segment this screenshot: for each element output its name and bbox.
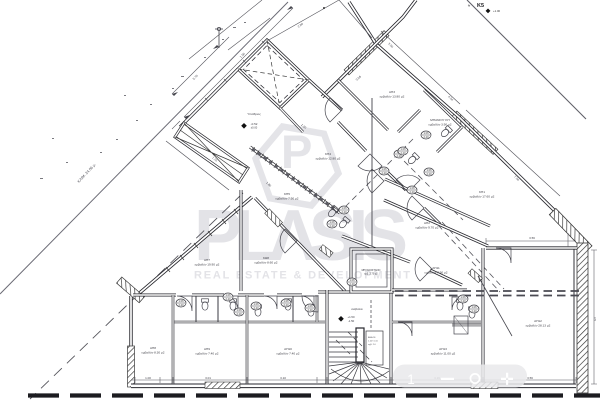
svg-text:K5: K5	[477, 3, 484, 9]
svg-text:ΑΠ11: ΑΠ11	[432, 266, 440, 270]
svg-text:ΚΠ1: ΚΠ1	[479, 190, 485, 194]
svg-text:εμβαδόν 28.13 μ2: εμβαδόν 28.13 μ2	[526, 324, 551, 328]
svg-text:PLΛSIS: PLΛSIS	[194, 196, 410, 276]
svg-text:1: 1	[407, 372, 415, 387]
svg-text:ΑΠ13: ΑΠ13	[439, 347, 447, 351]
svg-text:ΑΠ9: ΑΠ9	[204, 347, 210, 351]
svg-text:Υπαίθριος: Υπαίθριος	[247, 112, 261, 116]
svg-text:1.00: 1.00	[145, 376, 151, 380]
svg-text:ΑΠ10: ΑΠ10	[284, 347, 292, 351]
svg-text:εμβαδόν 19.90 μ2: εμβαδόν 19.90 μ2	[195, 263, 220, 267]
svg-text:3.5: 3.5	[593, 317, 597, 322]
svg-text:ΚΘ8: ΚΘ8	[263, 256, 269, 260]
svg-text:εμβαδόν 11.00 μ2: εμβαδόν 11.00 μ2	[431, 352, 456, 356]
svg-text:-1.50: -1.50	[348, 319, 355, 323]
svg-text:±0.00: ±0.00	[251, 126, 258, 130]
svg-text:εμβαδόν 7.40 μ2: εμβαδόν 7.40 μ2	[277, 352, 300, 356]
svg-text:ΑΠ3: ΑΠ3	[389, 90, 395, 94]
svg-text:3.01: 3.01	[205, 376, 211, 380]
svg-text:ΑΠ12: ΑΠ12	[534, 319, 542, 323]
svg-text:εμβαδόν 3.90 μ2: εμβαδόν 3.90 μ2	[429, 123, 452, 127]
svg-text:ΑΠ7: ΑΠ7	[204, 258, 210, 262]
svg-text:εμβ. 2.0: εμβ. 2.0	[368, 344, 377, 346]
svg-text:εμβαδόν 17.60 μ2: εμβαδόν 17.60 μ2	[470, 195, 495, 199]
svg-text:ΑΝΕΛΚ.: ΑΝΕΛΚ.	[368, 336, 376, 339]
svg-text:ΚΠ4: ΚΠ4	[325, 152, 331, 156]
svg-text:εμβαδόν 8.60 μ2: εμβαδόν 8.60 μ2	[255, 261, 278, 265]
svg-text:3.56: 3.56	[529, 236, 535, 240]
svg-text:3.56: 3.56	[527, 376, 533, 380]
svg-text:εμβαδόν 12.80 μ2: εμβαδόν 12.80 μ2	[316, 157, 341, 161]
svg-text:εμβαδόν 7.90 μ2: εμβαδόν 7.90 μ2	[276, 197, 299, 201]
svg-text:ανεβαίνει: ανεβαίνει	[351, 307, 363, 311]
svg-text:-0.52: -0.52	[251, 122, 258, 126]
svg-text:1.20×1.10: 1.20×1.10	[368, 340, 379, 343]
svg-text:ΜΠΑΝΙΟΥ ΚΠ: ΜΠΑΝΙΟΥ ΚΠ	[430, 118, 449, 122]
svg-text:3.10: 3.10	[280, 376, 286, 380]
svg-text:ΑΠ8: ΑΠ8	[150, 346, 156, 350]
svg-text:εμβαδόν 9.70 μ2: εμβαδόν 9.70 μ2	[416, 226, 439, 230]
svg-text:εμβαδόν 7.40 μ2: εμβαδόν 7.40 μ2	[196, 352, 219, 356]
svg-text:εμβαδόν 13.80 μ2: εμβαδόν 13.80 μ2	[380, 95, 405, 99]
svg-text:εμβαδόν 8.30 μ2: εμβαδόν 8.30 μ2	[142, 351, 165, 355]
svg-text:εμβαδόν 7.90 μ2: εμβαδόν 7.90 μ2	[425, 271, 448, 275]
svg-text:ΚΠ5: ΚΠ5	[284, 192, 290, 196]
svg-text:εμβ. 2.70 μ2: εμβ. 2.70 μ2	[364, 273, 378, 276]
svg-text:ΑΠ2: ΑΠ2	[424, 221, 430, 225]
svg-text:+1.00: +1.00	[493, 9, 501, 13]
